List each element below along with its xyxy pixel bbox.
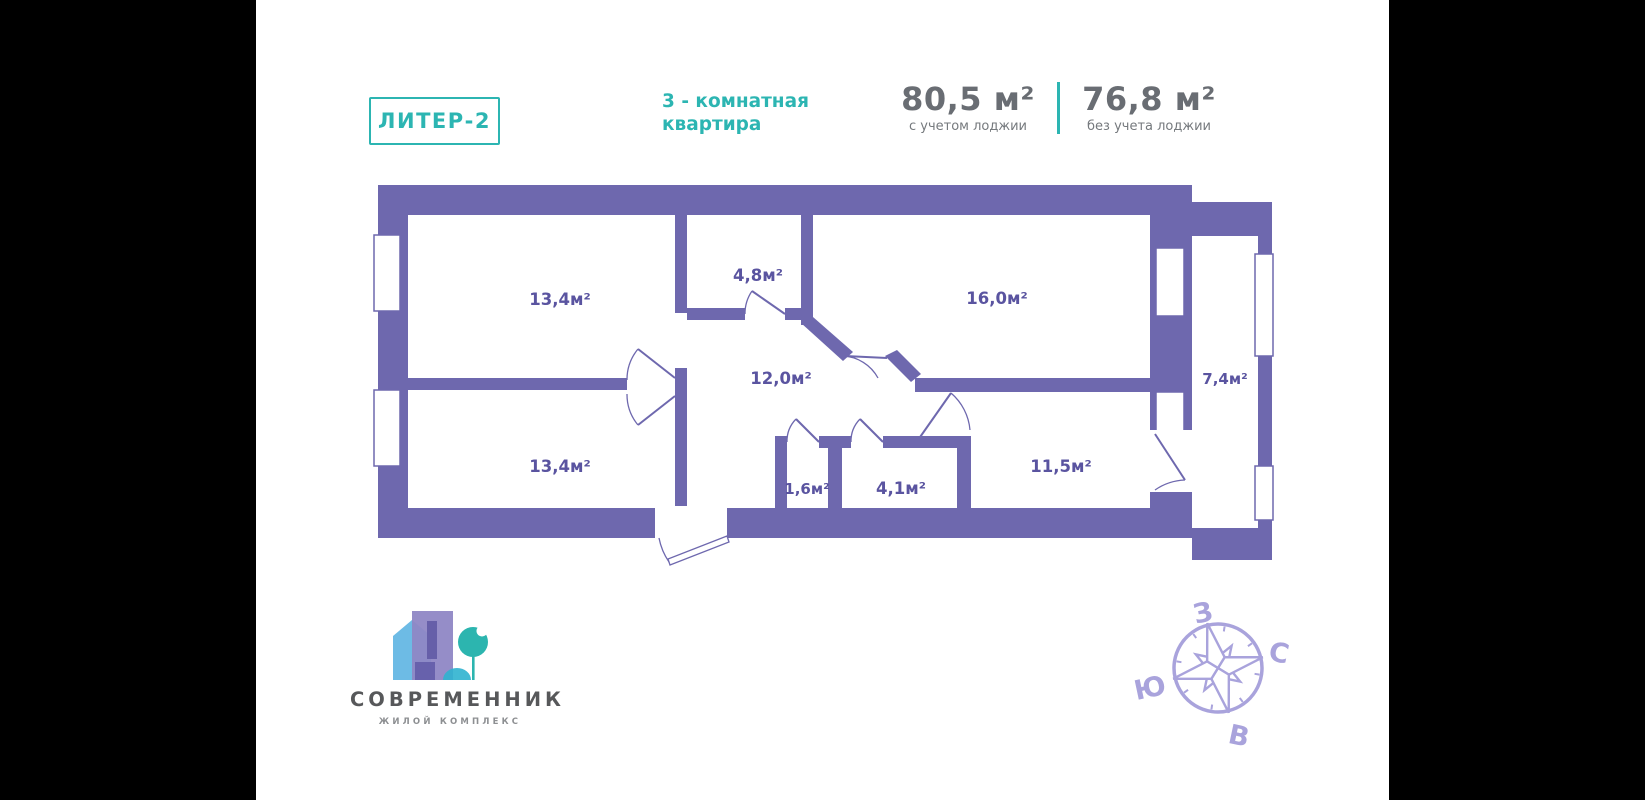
door-arc (787, 419, 796, 442)
compass-label-east: В (1226, 719, 1253, 754)
window (374, 235, 400, 311)
door-arc (627, 394, 638, 425)
wall-interior (675, 213, 687, 313)
wall-interior (675, 368, 687, 510)
wall-interior (957, 448, 971, 510)
wall-interior (828, 448, 842, 510)
area-with-loggia-value: 80,5 м² (893, 80, 1043, 118)
door-leaf (752, 291, 785, 314)
wall-bottom (378, 508, 1192, 538)
developer-logo: СОВРЕМЕННИК ЖИЛОЙ КОМПЛЕКС (350, 608, 550, 727)
room-area-label-top-left: 13,4м² (529, 290, 590, 309)
loggia-wall-bottom (1192, 528, 1272, 560)
door-leaf (918, 393, 951, 440)
apartment-type-line2: квартира (662, 113, 809, 136)
room-area-label-bottom-right: 11,5м² (1030, 457, 1091, 476)
floor-plan: 13,4м² 4,8м² 16,0м² 12,0м² 13,4м² 1,6м² … (373, 178, 1283, 570)
window (1156, 248, 1184, 316)
tower-base-icon (415, 662, 435, 680)
door-arc (843, 356, 878, 378)
area-stats: 80,5 м² с учетом лоджии 76,8 м² без учет… (893, 80, 1224, 134)
room-area-label-top-right: 16,0м² (966, 289, 1027, 308)
door-arc (627, 349, 638, 380)
room-area-label-top-middle: 4,8м² (733, 266, 783, 285)
wall-interior (775, 448, 787, 510)
wall-interior (915, 378, 1150, 392)
door-leaf (860, 419, 883, 442)
area-without-loggia-label: без учета лоджии (1074, 119, 1224, 134)
wall-interior (819, 436, 851, 448)
area-with-loggia: 80,5 м² с учетом лоджии (893, 80, 1043, 134)
entrance-door-leaf (668, 536, 729, 565)
room-area-label-wc: 1,6м² (784, 480, 829, 498)
door-arc (951, 393, 970, 430)
door-arc (745, 291, 752, 314)
wall-interior (785, 308, 801, 320)
compass-label-south: Ю (1131, 670, 1168, 707)
tower-window-icon (427, 621, 437, 659)
door-leaf (638, 396, 675, 425)
room-area-label-loggia: 7,4м² (1202, 370, 1247, 388)
window (1255, 254, 1273, 356)
apartment-type: 3 - комнатная квартира (662, 90, 809, 136)
door-arc (851, 419, 860, 442)
liter-badge: ЛИТЕР-2 (369, 97, 500, 145)
area-with-loggia-label: с учетом лоджии (893, 119, 1043, 134)
window (1156, 392, 1184, 434)
room-area-label-bottom-left: 13,4м² (529, 457, 590, 476)
wall-interior (883, 436, 971, 448)
area-without-loggia: 76,8 м² без учета лоджии (1074, 80, 1224, 134)
room-area-label-bathroom: 4,1м² (876, 479, 926, 498)
entrance-door-arc (659, 538, 669, 562)
wall-interior (801, 213, 813, 325)
wall-interior (775, 436, 787, 448)
developer-name: СОВРЕМЕННИК (350, 688, 550, 711)
room-area-label-hallway: 12,0м² (750, 369, 811, 388)
tree-notch (477, 626, 488, 637)
compass-label-north: С (1266, 636, 1292, 670)
wall-diagonal (885, 350, 921, 382)
wall-interior (408, 378, 627, 390)
developer-logo-graphic (385, 608, 515, 684)
door-leaf (796, 419, 819, 442)
entrance-opening (655, 506, 727, 540)
compass-label-west: З (1190, 596, 1215, 630)
stats-divider (1057, 82, 1060, 134)
door-leaf (638, 349, 675, 378)
developer-subtitle: ЖИЛОЙ КОМПЛЕКС (350, 717, 550, 727)
apartment-type-line1: 3 - комнатная (662, 90, 809, 113)
window (1255, 466, 1273, 520)
compass-rose: З С Ю В (1128, 595, 1308, 757)
wall-top (378, 185, 1192, 215)
wall-interior (687, 308, 745, 320)
wall-diagonal (801, 317, 853, 361)
area-without-loggia-value: 76,8 м² (1074, 80, 1224, 118)
window (374, 390, 400, 466)
